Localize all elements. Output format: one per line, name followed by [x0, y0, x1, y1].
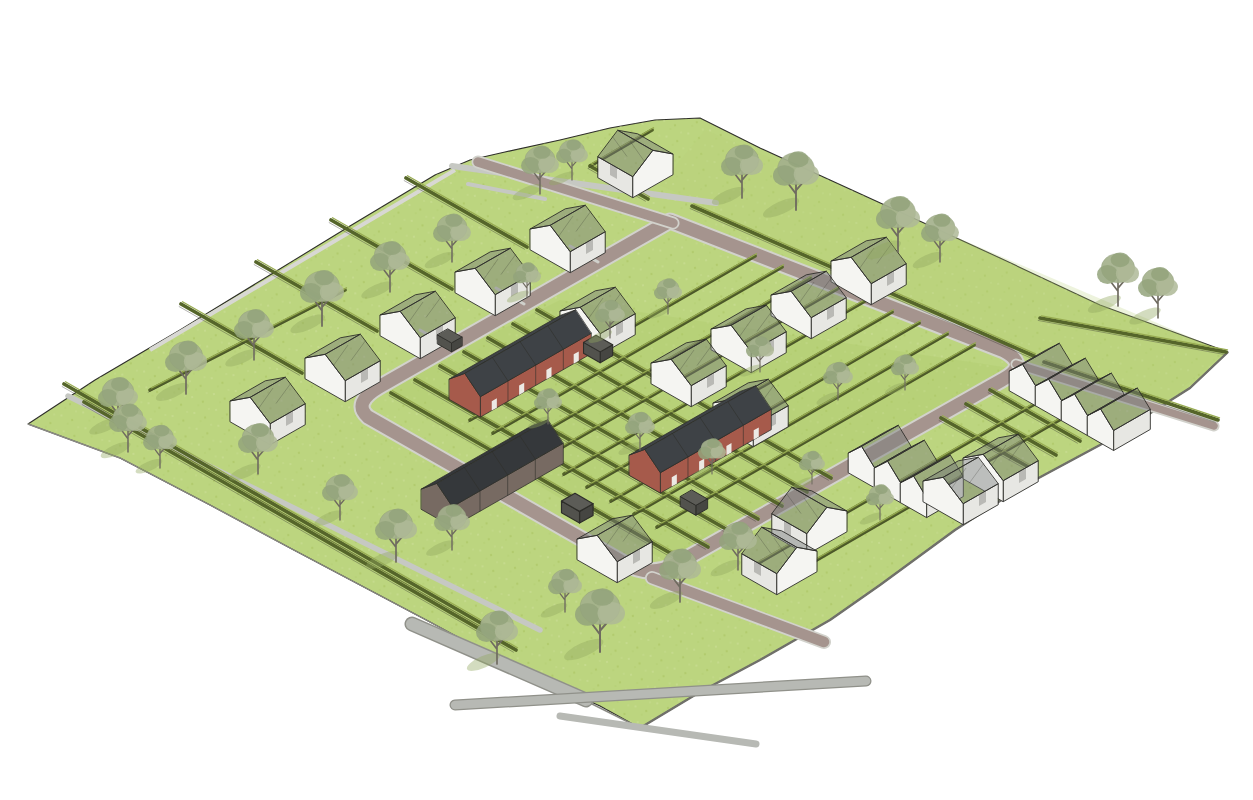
site-plan-rendering	[0, 0, 1253, 800]
south-spur-road	[560, 716, 756, 744]
axonometric-scene	[0, 0, 1253, 800]
